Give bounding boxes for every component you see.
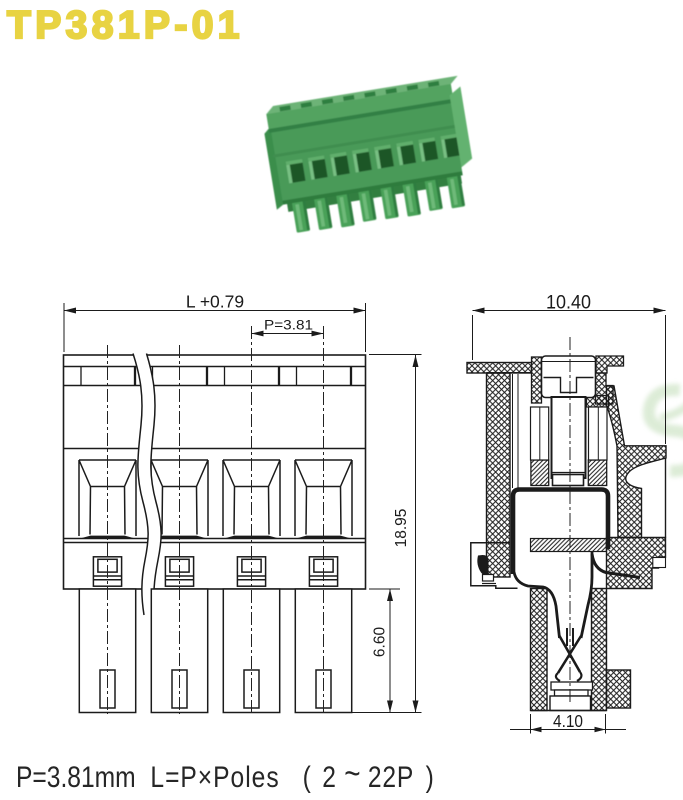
svg-text:18.95: 18.95 — [393, 509, 410, 548]
svg-text:L +0.79: L +0.79 — [186, 292, 244, 312]
svg-text:4.10: 4.10 — [553, 711, 583, 731]
svg-text:6.60: 6.60 — [372, 627, 389, 658]
svg-text:P=3.81: P=3.81 — [264, 317, 313, 333]
svg-text:10.40: 10.40 — [546, 292, 591, 314]
